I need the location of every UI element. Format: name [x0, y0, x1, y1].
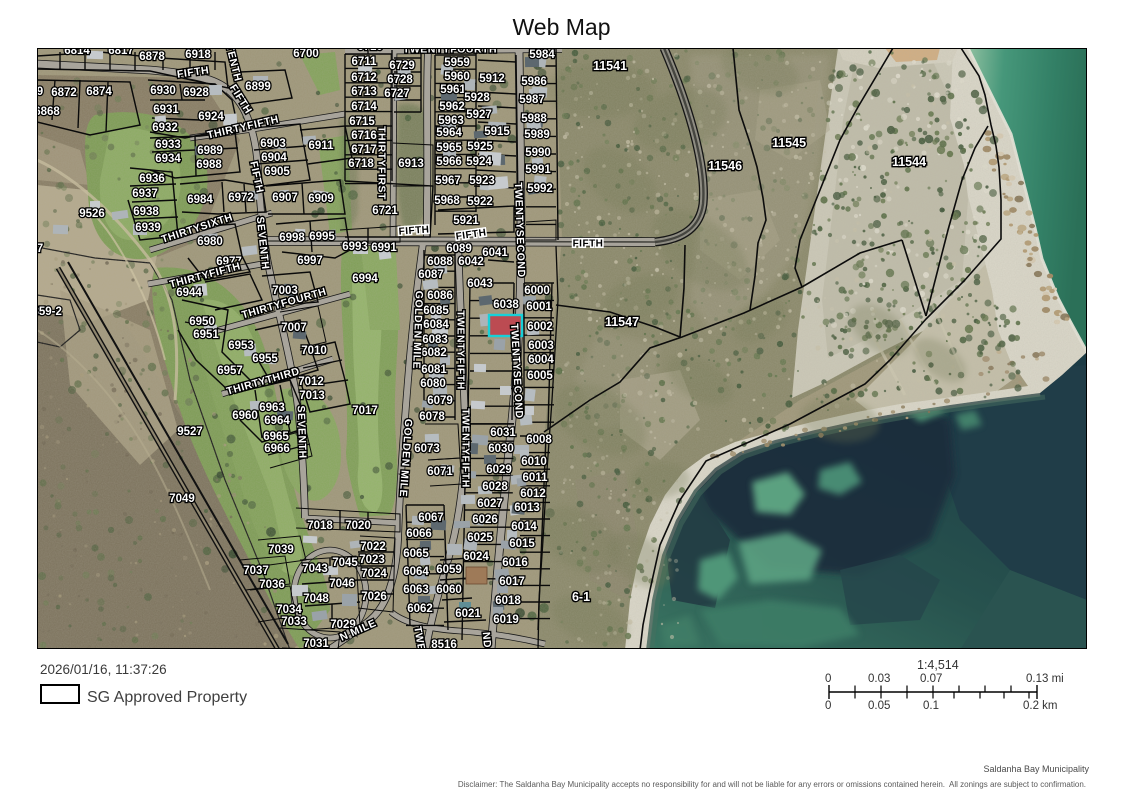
svg-text:6030: 6030 — [488, 443, 514, 455]
svg-text:7031: 7031 — [303, 638, 329, 649]
svg-text:6993: 6993 — [342, 241, 368, 253]
svg-text:6078: 6078 — [419, 411, 445, 423]
svg-text:7048: 7048 — [303, 593, 329, 605]
svg-text:7036: 7036 — [259, 579, 285, 591]
svg-text:5925: 5925 — [467, 141, 493, 153]
svg-text:6-1: 6-1 — [572, 590, 590, 604]
svg-text:TWENTYFIFTH: TWENTYFIFTH — [455, 310, 467, 390]
svg-text:6718: 6718 — [348, 158, 374, 170]
svg-text:5927: 5927 — [466, 109, 492, 121]
svg-text:6716: 6716 — [351, 130, 377, 142]
svg-text:7034: 7034 — [276, 604, 302, 616]
svg-text:6930: 6930 — [150, 85, 176, 97]
svg-text:6062: 6062 — [407, 603, 433, 615]
svg-text:6014: 6014 — [511, 521, 537, 533]
svg-text:7022: 7022 — [360, 541, 386, 553]
svg-text:8859-2: 8859-2 — [37, 306, 62, 318]
svg-text:11544: 11544 — [892, 155, 926, 169]
svg-text:6932: 6932 — [152, 122, 178, 134]
svg-text:6988: 6988 — [196, 159, 222, 171]
svg-text:6018: 6018 — [495, 595, 521, 607]
svg-text:7012: 7012 — [298, 376, 324, 388]
svg-text:5964: 5964 — [436, 127, 462, 139]
svg-text:6080: 6080 — [420, 378, 446, 390]
svg-text:6717: 6717 — [351, 144, 377, 156]
svg-text:7010: 7010 — [301, 345, 327, 357]
svg-text:5992: 5992 — [527, 183, 553, 195]
svg-text:7033: 7033 — [281, 616, 307, 628]
svg-text:6028: 6028 — [482, 481, 508, 493]
svg-text:8516: 8516 — [431, 639, 457, 649]
svg-text:6868: 6868 — [37, 106, 60, 118]
svg-text:6951: 6951 — [193, 329, 219, 341]
svg-text:6936: 6936 — [139, 173, 165, 185]
svg-text:6728: 6728 — [387, 74, 413, 86]
svg-text:TWENTYFIFTH: TWENTYFIFTH — [460, 408, 472, 488]
svg-text:6700: 6700 — [293, 48, 319, 60]
svg-text:6963: 6963 — [259, 402, 285, 414]
svg-text:6016: 6016 — [502, 557, 528, 569]
svg-text:6817: 6817 — [108, 48, 134, 57]
svg-text:6909: 6909 — [308, 193, 334, 205]
svg-text:5924: 5924 — [466, 156, 492, 168]
svg-text:6003: 6003 — [528, 340, 554, 352]
svg-text:6729: 6729 — [389, 60, 415, 72]
svg-text:5922: 5922 — [467, 196, 493, 208]
svg-text:6991: 6991 — [371, 242, 397, 254]
svg-text:6013: 6013 — [514, 502, 540, 514]
svg-text:6029: 6029 — [486, 464, 512, 476]
svg-text:6084: 6084 — [423, 319, 449, 331]
svg-text:7013: 7013 — [299, 390, 325, 402]
svg-text:6065: 6065 — [403, 548, 429, 560]
svg-text:6011: 6011 — [523, 472, 549, 484]
svg-text:6955: 6955 — [252, 353, 278, 365]
svg-text:5988: 5988 — [521, 113, 547, 125]
svg-text:6714: 6714 — [351, 101, 377, 113]
svg-text:6066: 6066 — [406, 528, 432, 540]
svg-text:SEVENTH: SEVENTH — [295, 405, 309, 458]
svg-text:5963: 5963 — [438, 115, 464, 127]
svg-text:6984: 6984 — [187, 194, 213, 206]
svg-text:6903: 6903 — [260, 138, 286, 150]
svg-text:5960: 5960 — [444, 71, 470, 83]
svg-text:7023: 7023 — [359, 554, 385, 566]
svg-text:6711: 6711 — [352, 56, 378, 68]
svg-text:6994: 6994 — [352, 273, 378, 285]
svg-text:11541: 11541 — [593, 59, 627, 73]
svg-text:6071: 6071 — [427, 466, 453, 478]
svg-text:5928: 5928 — [464, 92, 490, 104]
svg-text:6814: 6814 — [64, 48, 90, 57]
svg-text:6998: 6998 — [279, 232, 305, 244]
svg-text:6073: 6073 — [414, 443, 440, 455]
svg-text:5961: 5961 — [440, 84, 466, 96]
svg-text:6995: 6995 — [309, 231, 335, 243]
svg-text:6083: 6083 — [422, 334, 448, 346]
svg-text:6060: 6060 — [436, 584, 462, 596]
svg-text:6042: 6042 — [458, 256, 484, 268]
svg-text:6024: 6024 — [463, 551, 489, 563]
svg-text:6874: 6874 — [86, 86, 112, 98]
svg-text:5989: 5989 — [524, 129, 550, 141]
svg-text:6010: 6010 — [521, 456, 547, 468]
svg-text:6934: 6934 — [155, 153, 181, 165]
svg-text:6081: 6081 — [421, 364, 447, 376]
svg-text:6025: 6025 — [467, 532, 493, 544]
svg-text:6059: 6059 — [436, 564, 462, 576]
svg-text:6721: 6721 — [372, 205, 398, 217]
svg-text:6713: 6713 — [351, 86, 377, 98]
svg-text:7037: 7037 — [243, 565, 269, 577]
svg-text:6727: 6727 — [384, 88, 410, 100]
svg-text:6086: 6086 — [427, 290, 453, 302]
svg-text:6085: 6085 — [423, 305, 449, 317]
svg-text:5921: 5921 — [453, 215, 479, 227]
svg-text:6001: 6001 — [526, 301, 552, 313]
svg-text:6918: 6918 — [185, 49, 211, 61]
svg-text:6944: 6944 — [176, 287, 202, 299]
svg-text:7043: 7043 — [302, 563, 328, 575]
svg-text:6966: 6966 — [264, 443, 290, 455]
svg-text:6015: 6015 — [509, 538, 535, 550]
svg-text:6911: 6911 — [309, 140, 335, 152]
svg-text:6005: 6005 — [527, 370, 553, 382]
svg-text:6087: 6087 — [418, 269, 444, 281]
svg-text:6950: 6950 — [189, 316, 215, 328]
svg-text:7007: 7007 — [281, 322, 307, 334]
svg-text:9526: 9526 — [79, 208, 105, 220]
svg-text:6017: 6017 — [499, 576, 525, 588]
svg-text:9527: 9527 — [177, 426, 203, 438]
svg-text:6980: 6980 — [197, 236, 223, 248]
svg-text:FIFTH: FIFTH — [573, 239, 604, 250]
svg-text:5965: 5965 — [436, 142, 462, 154]
svg-text:6067: 6067 — [418, 512, 444, 524]
svg-text:6063: 6063 — [403, 584, 429, 596]
svg-text:11546: 11546 — [708, 159, 742, 173]
svg-text:7020: 7020 — [345, 520, 371, 532]
svg-text:6000: 6000 — [524, 285, 550, 297]
svg-text:5959: 5959 — [444, 57, 470, 69]
svg-text:6997: 6997 — [297, 255, 323, 267]
svg-text:6964: 6964 — [264, 415, 290, 427]
svg-text:5912: 5912 — [479, 73, 505, 85]
svg-text:7024: 7024 — [361, 568, 387, 580]
svg-text:6899: 6899 — [245, 81, 271, 93]
svg-text:5962: 5962 — [439, 101, 465, 113]
svg-text:5984: 5984 — [529, 49, 555, 61]
svg-text:6913: 6913 — [398, 158, 424, 170]
svg-text:6089: 6089 — [446, 243, 472, 255]
svg-text:6008: 6008 — [526, 434, 552, 446]
svg-text:7017: 7017 — [352, 405, 378, 417]
svg-text:6904: 6904 — [261, 152, 287, 164]
svg-text:7045: 7045 — [332, 557, 358, 569]
svg-text:6960: 6960 — [232, 410, 258, 422]
svg-text:7018: 7018 — [307, 520, 333, 532]
svg-text:6937: 6937 — [132, 188, 158, 200]
svg-text:6924: 6924 — [198, 111, 224, 123]
svg-text:7046: 7046 — [329, 578, 355, 590]
svg-text:7026: 7026 — [361, 591, 387, 603]
svg-text:TWENTYFOURTH: TWENTYFOURTH — [403, 48, 497, 56]
svg-text:7049: 7049 — [169, 493, 195, 505]
svg-text:5966: 5966 — [436, 156, 462, 168]
svg-text:6905: 6905 — [264, 166, 290, 178]
svg-text:6965: 6965 — [263, 431, 289, 443]
svg-text:6082: 6082 — [421, 347, 447, 359]
svg-text:6872: 6872 — [51, 87, 77, 99]
svg-text:6972: 6972 — [228, 192, 254, 204]
svg-text:THIRTYFIRST: THIRTYFIRST — [376, 126, 388, 200]
svg-text:6939: 6939 — [135, 222, 161, 234]
svg-text:FIFTH: FIFTH — [398, 224, 430, 237]
svg-text:6038: 6038 — [493, 299, 519, 311]
svg-text:5987: 5987 — [519, 94, 545, 106]
svg-text:6088: 6088 — [427, 256, 453, 268]
svg-text:5923: 5923 — [469, 175, 495, 187]
svg-text:6931: 6931 — [153, 104, 179, 116]
svg-text:6928: 6928 — [183, 87, 209, 99]
svg-text:6012: 6012 — [520, 488, 546, 500]
svg-text:11547: 11547 — [605, 315, 639, 329]
svg-text:5915: 5915 — [484, 126, 510, 138]
svg-text:11545: 11545 — [772, 136, 806, 150]
svg-text:7039: 7039 — [268, 544, 294, 556]
svg-text:6079: 6079 — [427, 395, 453, 407]
svg-text:ND: ND — [480, 631, 493, 648]
svg-text:6938: 6938 — [133, 206, 159, 218]
svg-text:5991: 5991 — [525, 164, 551, 176]
svg-text:6878: 6878 — [139, 51, 165, 63]
svg-text:6031: 6031 — [490, 427, 516, 439]
svg-text:5967: 5967 — [435, 175, 461, 187]
svg-text:5986: 5986 — [521, 76, 547, 88]
svg-text:6027: 6027 — [477, 498, 503, 510]
svg-text:5968: 5968 — [434, 195, 460, 207]
svg-text:6953: 6953 — [228, 340, 254, 352]
svg-text:6712: 6712 — [351, 72, 377, 84]
svg-text:6021: 6021 — [455, 608, 481, 620]
svg-text:5990: 5990 — [525, 147, 551, 159]
svg-text:6004: 6004 — [528, 354, 554, 366]
svg-text:6957: 6957 — [217, 365, 243, 377]
svg-text:6026: 6026 — [472, 514, 498, 526]
svg-text:6043: 6043 — [467, 278, 493, 290]
svg-text:6907: 6907 — [272, 192, 298, 204]
svg-text:6933: 6933 — [155, 139, 181, 151]
svg-text:6715: 6715 — [349, 116, 375, 128]
svg-text:6064: 6064 — [403, 566, 429, 578]
svg-text:6041: 6041 — [482, 247, 508, 259]
svg-text:6002: 6002 — [527, 321, 553, 333]
svg-text:6989: 6989 — [197, 145, 223, 157]
svg-text:6019: 6019 — [493, 614, 519, 626]
